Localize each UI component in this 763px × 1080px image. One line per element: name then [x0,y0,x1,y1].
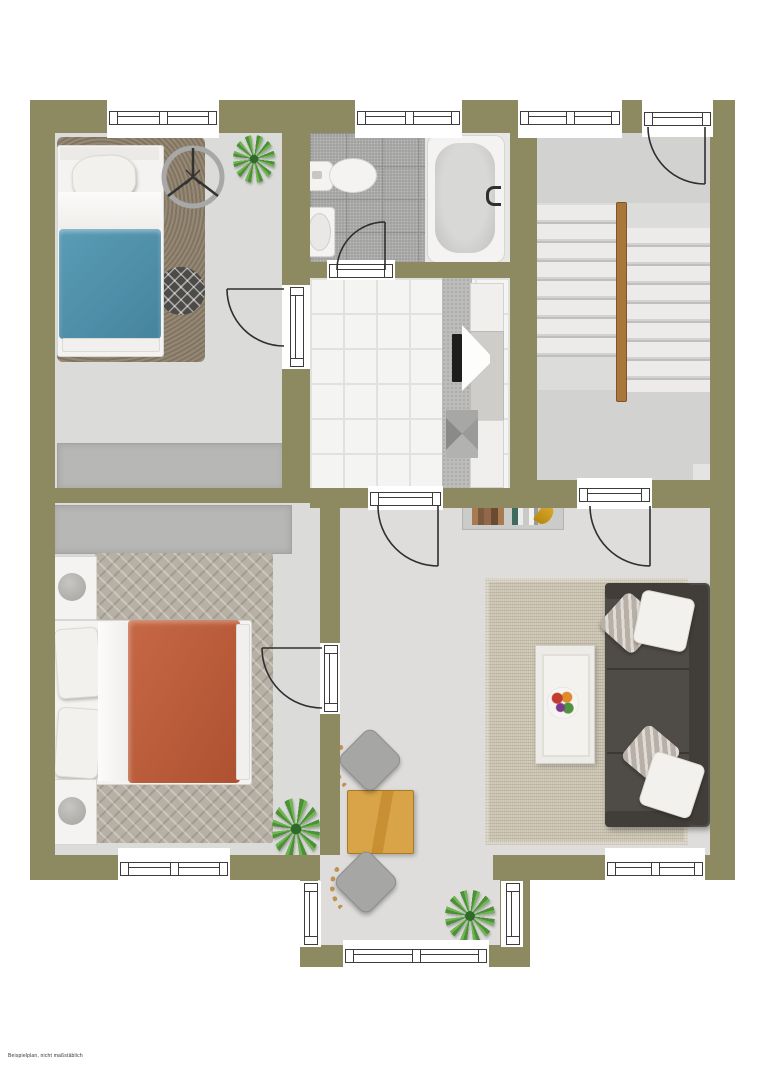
wall-stair-bottom [537,480,577,508]
wall-stair-left [510,133,537,508]
wall-bedroom1-bottom [30,488,310,503]
bed1-duvet-blue [59,229,161,339]
stair-flight-right [625,228,710,392]
window-bay-right [501,881,523,947]
bedroom1-plant [233,135,275,183]
wall-top [219,100,355,133]
door-utility-threshold [368,486,443,510]
window-bedroom2 [118,848,230,887]
bed2-pillow-bottom [54,707,103,780]
bedroom2-wardrobe [52,505,292,554]
plan-caption: Beispielplan, nicht maßstäblich [8,1053,168,1059]
bedroom2-plant [272,798,320,860]
door-bedroom2-threshold [320,643,340,714]
stair-lower-landing [537,390,710,480]
utility-sideboard-top [470,283,504,333]
wall-bedroom2-right [320,712,340,855]
window-living [605,848,705,887]
pyramid-object [446,410,478,458]
sofa-seat-divider [607,668,689,670]
wall-bedroom1-right [282,133,310,287]
window-bathroom [355,95,462,138]
door-stairwell-threshold [577,478,652,509]
sofa-cushion-white-top [632,589,696,653]
tv-screen [452,334,462,382]
wall-bath-bottom [310,262,327,278]
stair-upper-landing [537,133,710,203]
door-bathroom-threshold [327,260,395,280]
window-bedroom1 [107,95,219,138]
wall-top [713,100,735,133]
nightstand-lamp-bottom [58,797,86,825]
hall-plant [445,890,495,942]
bed1-footboard [62,338,160,352]
bed2-duvet-orange [128,620,240,783]
wall-bedroom2-right [320,503,340,645]
dining-table [347,790,414,854]
toilet-button [312,171,322,179]
stair-handrail [616,202,627,402]
wall-top [622,100,642,133]
door-bedroom1-threshold [282,285,310,369]
bed1-sheet [58,192,161,232]
floor-plan: Beispielplan, nicht maßstäblich [0,0,763,1080]
bedroom1-wardrobe [57,443,285,490]
wall-stair-bottom [652,480,735,508]
nightstand-lamp-top [58,573,86,601]
wall-bedroom1-right [282,367,310,503]
window-stairwell [518,95,622,138]
bathtub-faucet [486,186,501,206]
toilet-bowl [329,158,377,193]
window-bay-left [299,881,321,947]
wall-bottom [30,855,118,880]
stair-flight-left [537,205,617,357]
round-patterned-rug [157,267,205,315]
bed2-pillow-top [54,627,103,700]
wall-bottom [705,855,735,880]
bed2-footboard [236,624,250,780]
window-bay-bottom [343,940,489,969]
wall-utility-bottom [443,488,537,508]
entry-door-threshold [642,98,713,137]
fruit-bowl [547,687,579,719]
washbasin-bowl [308,213,331,251]
wall-top [462,100,518,133]
